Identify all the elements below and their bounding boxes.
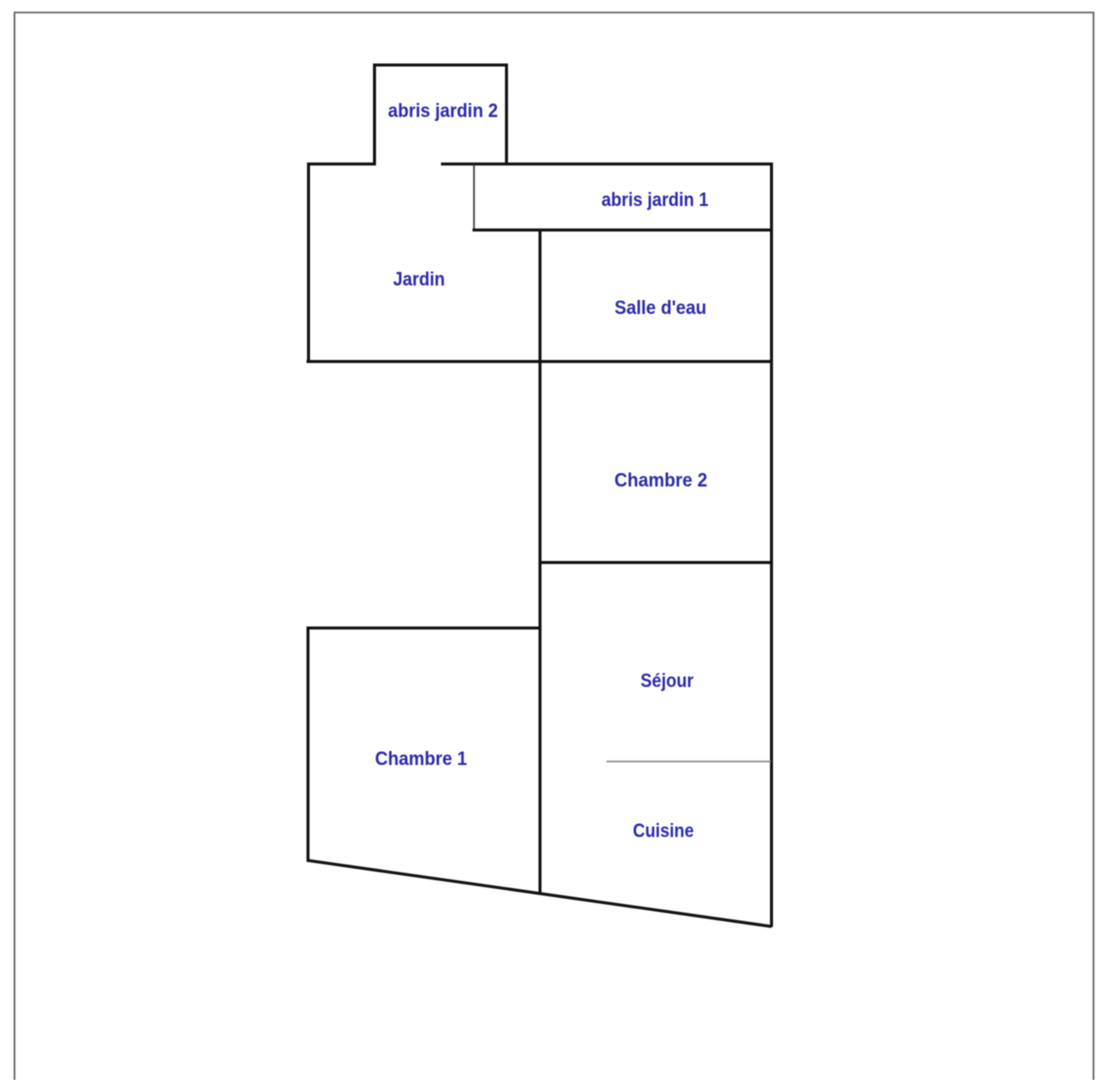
svg-text:Salle d'eau: Salle d'eau (615, 298, 707, 319)
svg-text:abris jardin 1: abris jardin 1 (602, 190, 709, 211)
svg-text:Séjour: Séjour (641, 671, 695, 692)
svg-text:Jardin: Jardin (393, 270, 445, 291)
svg-text:abris jardin 2: abris jardin 2 (388, 101, 498, 122)
svg-text:Cuisine: Cuisine (633, 821, 694, 842)
svg-text:Chambre 2: Chambre 2 (614, 471, 707, 492)
svg-text:Chambre 1: Chambre 1 (375, 749, 467, 770)
